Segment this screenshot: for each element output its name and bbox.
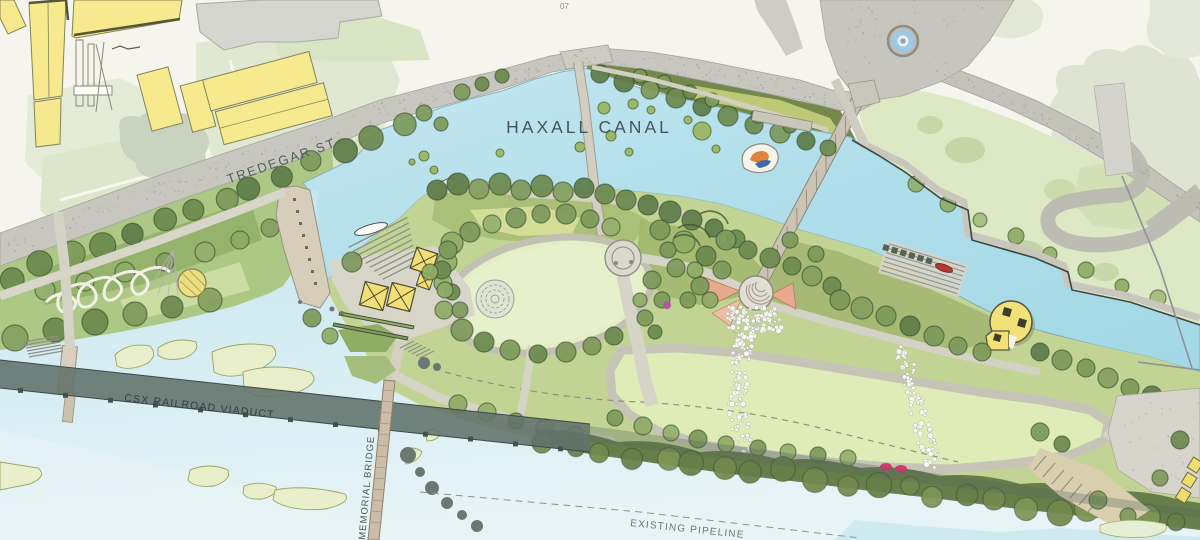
svg-text:07: 07: [560, 2, 569, 11]
svg-text:HAXALL CANAL: HAXALL CANAL: [506, 117, 672, 137]
